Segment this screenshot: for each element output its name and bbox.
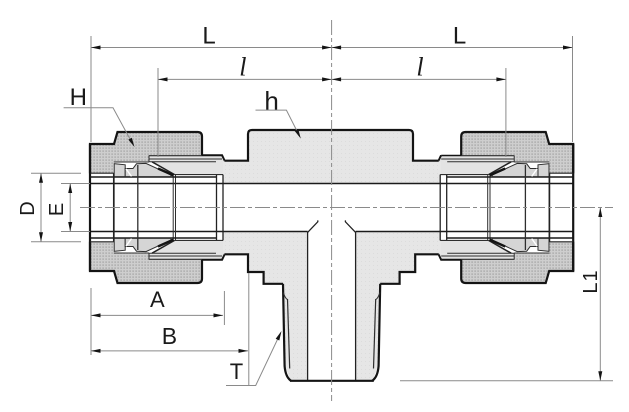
svg-text:l: l [416,53,423,82]
svg-text:D: D [17,201,39,215]
svg-text:l: l [239,53,246,82]
svg-text:L: L [453,22,466,49]
svg-text:E: E [46,203,68,216]
svg-text:T: T [230,359,243,384]
svg-text:B: B [162,323,177,349]
svg-text:H: H [70,84,87,111]
svg-text:L1: L1 [580,269,602,293]
svg-text:h: h [264,86,278,116]
svg-text:A: A [150,287,165,312]
svg-text:L: L [202,22,215,49]
